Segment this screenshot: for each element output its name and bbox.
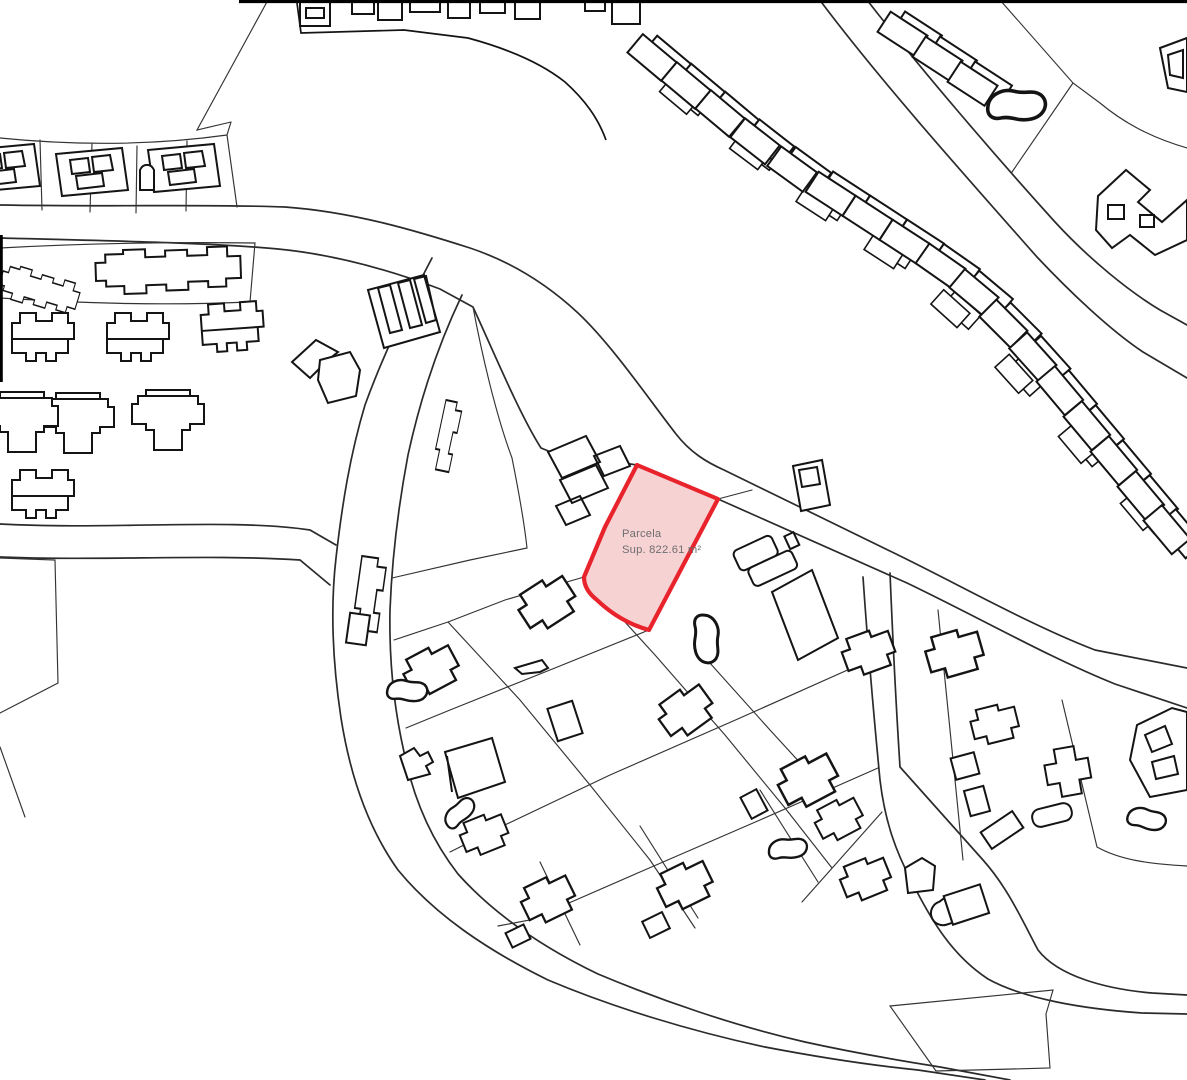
buildings-terrace-strip (0, 144, 220, 196)
map-viewport: Parcela Sup. 822.61 m² (0, 0, 1187, 1080)
road-left-spur-lower-edge (0, 557, 330, 585)
cadastral-map-canvas: Parcela Sup. 822.61 m² (0, 0, 1187, 1080)
parcel-area-label: Sup. 822.61 m² (622, 544, 701, 556)
parcel-name-label: Parcela (622, 528, 662, 540)
boundary-lines-bottomleft (0, 558, 58, 817)
boundary-lines-fork-island (392, 307, 527, 578)
building-road-kiosk (793, 460, 830, 511)
buildings-top-strip (297, 0, 640, 140)
buildings-apartment-blocks (0, 246, 265, 518)
road-left-spur-upper-edge (0, 524, 336, 545)
